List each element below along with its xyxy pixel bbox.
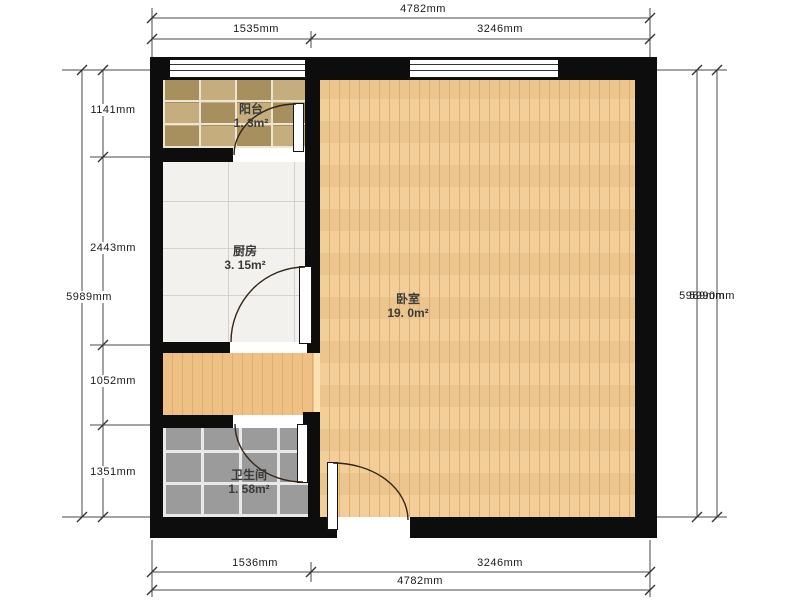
wall-left (150, 57, 163, 538)
dim-left-segment-2: 2443mm (89, 242, 137, 254)
bathroom-door-opening (233, 415, 303, 428)
dim-top-overall: 4782mm (399, 3, 447, 15)
hall-bedroom-threshold (314, 353, 320, 415)
dim-left-segment-3: 1052mm (89, 375, 137, 387)
wall-balcony-kitchen (163, 148, 233, 162)
dim-right-overall-outer: 5990mm (688, 290, 736, 302)
bathroom-door[interactable] (297, 424, 308, 483)
dim-left-segment-4: 1351mm (89, 466, 137, 478)
wall-right (635, 57, 657, 538)
dim-bottom-overall: 4782mm (396, 575, 444, 587)
bedroom-window[interactable] (410, 59, 558, 78)
room-bathroom[interactable] (163, 428, 308, 517)
entry-door[interactable] (327, 462, 338, 530)
dim-left-segment-1: 1141mm (90, 104, 137, 116)
entry-door-opening (337, 517, 410, 538)
room-hallway[interactable] (163, 353, 320, 415)
wall-bathroom-top (163, 415, 233, 428)
dim-top-segment-2: 3246mm (476, 23, 524, 35)
kitchen-door-opening (230, 342, 307, 353)
room-bedroom[interactable] (320, 80, 635, 517)
balcony-window[interactable] (170, 59, 305, 78)
wall-kitchen-hall-left (163, 342, 230, 353)
dim-bottom-segment-1: 1536mm (231, 557, 279, 569)
dim-left-overall: 5989mm (65, 291, 113, 303)
balcony-door[interactable] (293, 103, 304, 152)
dim-top-segment-1: 1535mm (232, 23, 280, 35)
floorplan-canvas: 4782mm 1535mm 3246mm 1536mm 3246mm 4782m… (0, 0, 800, 600)
kitchen-door[interactable] (299, 266, 312, 344)
dim-bottom-segment-2: 3246mm (476, 557, 524, 569)
room-kitchen[interactable] (163, 162, 305, 342)
wall-bathroom-bedroom (308, 417, 320, 517)
room-balcony[interactable] (163, 80, 305, 148)
